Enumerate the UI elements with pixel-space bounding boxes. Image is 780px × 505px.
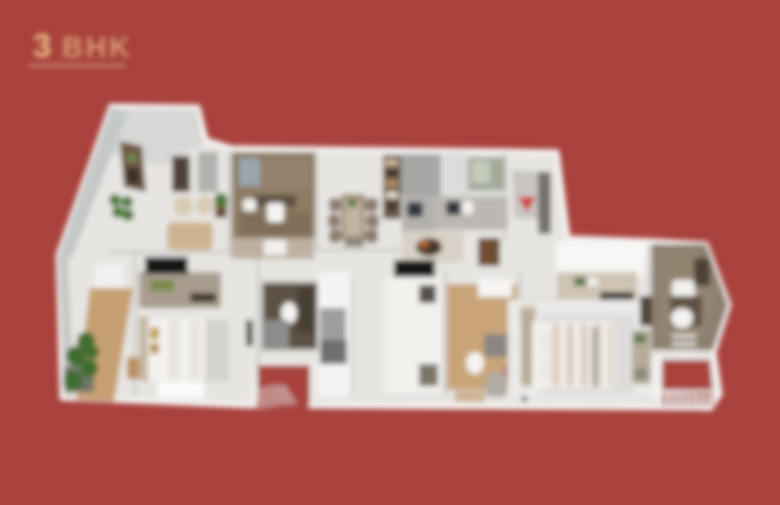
svg-text:3: 3 (33, 27, 51, 64)
svg-text:BHK: BHK (62, 32, 132, 64)
